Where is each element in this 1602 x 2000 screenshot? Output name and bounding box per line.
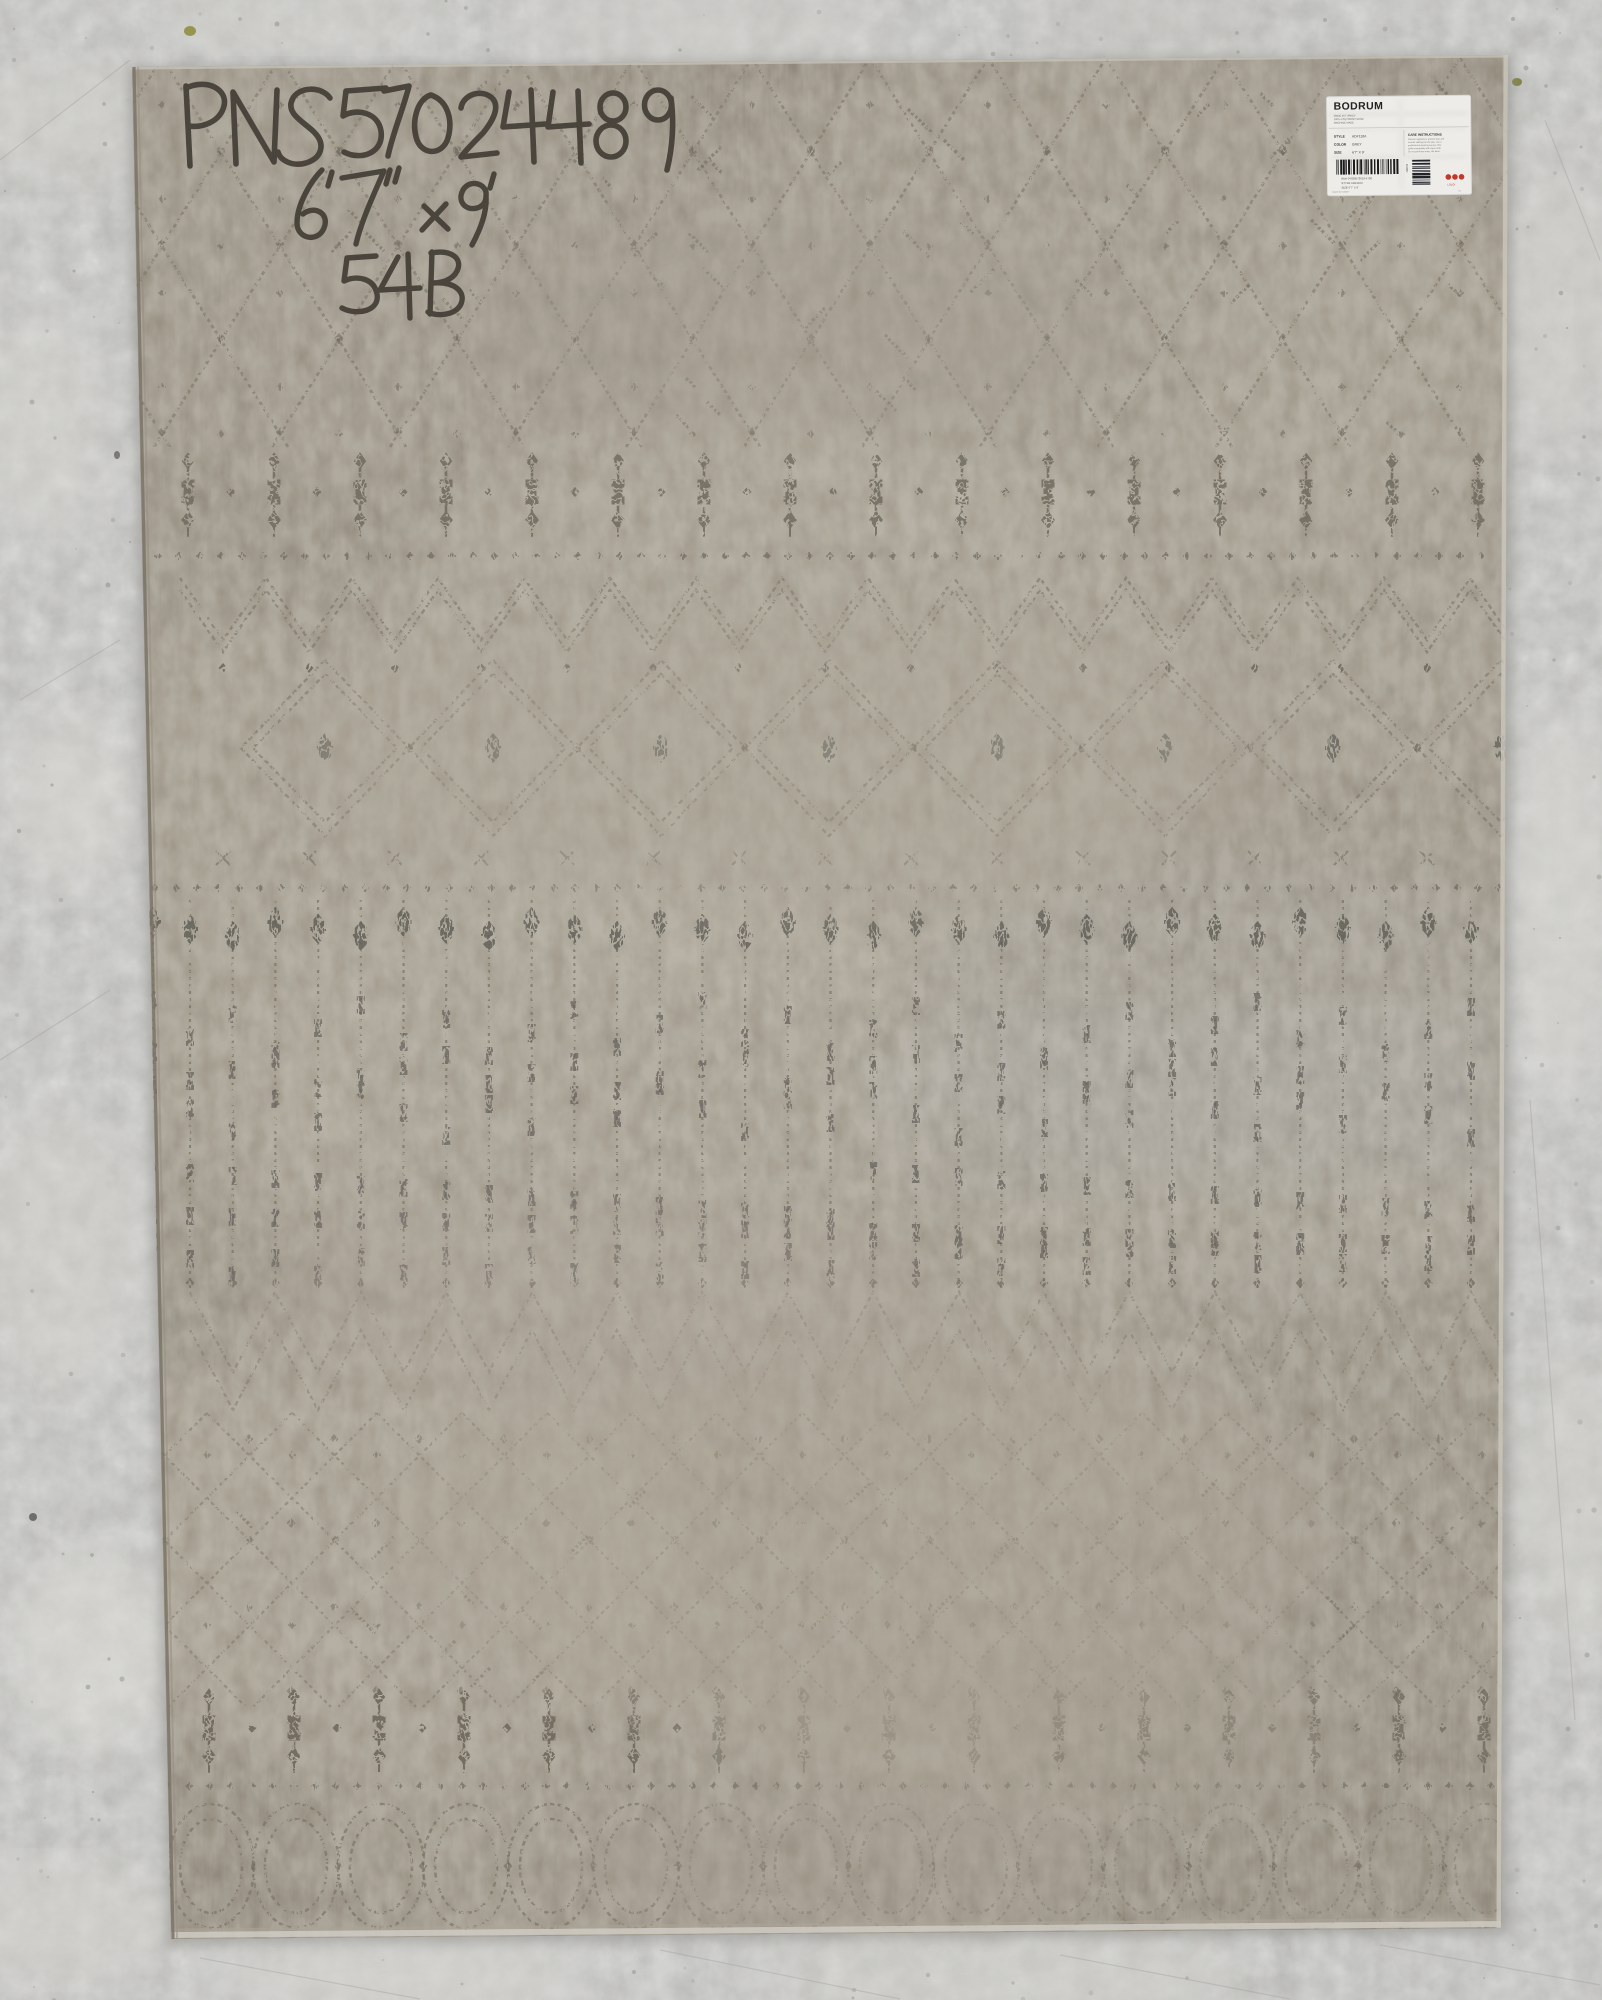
- svg-text:spills immediately with clean: spills immediately with clean cloth.: [1408, 147, 1442, 150]
- svg-text:crumbs settling into the pile.: crumbs settling into the pile. Use a: [1408, 141, 1442, 144]
- svg-text:Do not pull loose ends, clip t: Do not pull loose ends, clip them.: [1408, 150, 1441, 153]
- svg-text:COLOR: COLOR: [1334, 143, 1347, 147]
- svg-text:RN# 04039573619-4736: RN# 04039573619-4736: [1341, 176, 1372, 180]
- svg-text:MADE IN TURKEY: MADE IN TURKEY: [1332, 191, 1350, 194]
- svg-text:BODRUM: BODRUM: [1334, 100, 1384, 113]
- svg-text:STYLE: STYLE: [1334, 135, 1346, 139]
- svg-text:professional cleaning service.: professional cleaning service. Blot: [1408, 144, 1441, 147]
- svg-text:LOLOI: LOLOI: [1447, 182, 1455, 186]
- svg-text:100% POLYPROPYLENE: 100% POLYPROPYLENE: [1334, 117, 1364, 121]
- svg-text:GREY: GREY: [1352, 142, 1362, 146]
- svg-text:0403957: 0403957: [1405, 164, 1407, 173]
- svg-text:ADF110A: ADF110A: [1352, 134, 1367, 138]
- svg-text:SIZE 6'7" X 9': SIZE 6'7" X 9': [1341, 185, 1359, 189]
- svg-text:SIZE: SIZE: [1334, 151, 1342, 155]
- svg-text:CARE INSTRUCTIONS: CARE INSTRUCTIONS: [1408, 133, 1442, 137]
- svg-text:STYLE ADF110A: STYLE ADF110A: [1341, 181, 1363, 185]
- svg-text:Vacuum regularly to prevent du: Vacuum regularly to prevent dust and: [1408, 138, 1445, 141]
- svg-text:MACHINE MADE: MACHINE MADE: [1334, 120, 1354, 124]
- svg-text:6'7" X 9': 6'7" X 9': [1352, 150, 1365, 154]
